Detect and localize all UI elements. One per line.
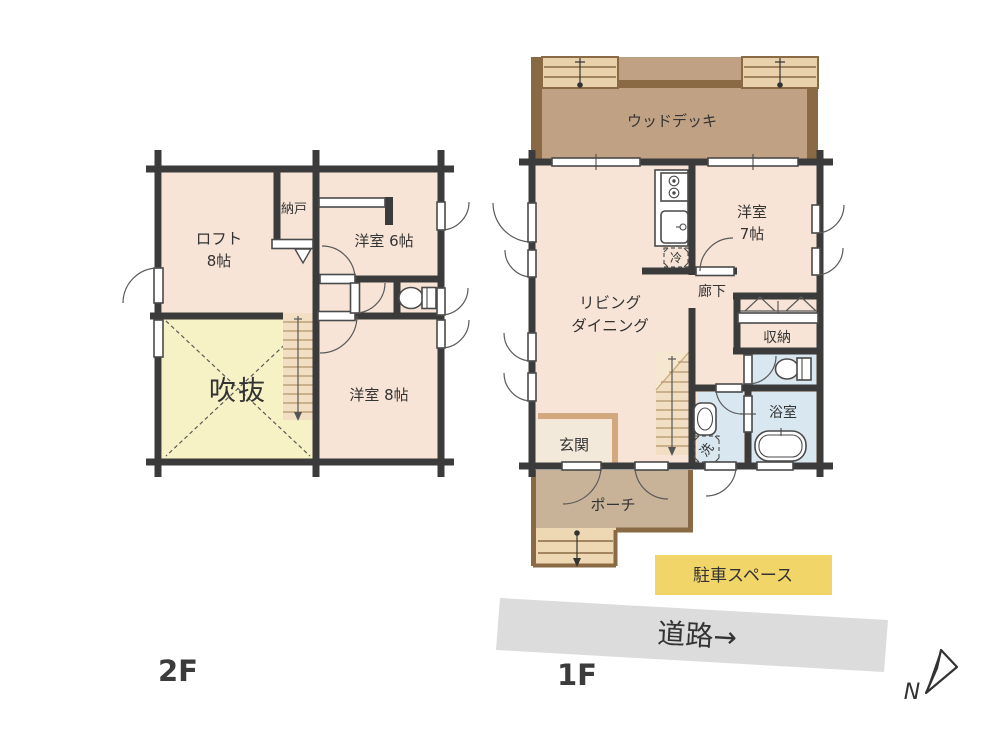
deck-steps-left [542, 57, 618, 88]
deck-label: ウッドデッキ [627, 112, 717, 130]
dining-label: ダイニング [571, 317, 649, 335]
living-window-3 [504, 333, 536, 361]
living-window-4 [504, 373, 536, 401]
toilet-icon [399, 288, 436, 309]
atrium-label: 吹抜 [209, 376, 267, 407]
floor-1f-label: 1F [557, 658, 597, 692]
wood-deck [531, 57, 818, 162]
living-window-2 [505, 250, 536, 277]
road-label: 道路→ [657, 617, 738, 655]
washbasin-icon [694, 403, 716, 435]
bath-window [757, 462, 793, 470]
floor-plan-canvas: ロフト 8帖 納戸 洋室 6帖 洋室 8帖 吹抜 2F [0, 0, 1000, 750]
room7-label: 洋室 [737, 203, 767, 221]
hallway-label: 廊下 [698, 283, 726, 300]
room7-window-2 [812, 248, 843, 275]
parking-label: 駐車スペース [693, 566, 793, 586]
fridge-label: 冷 [670, 251, 682, 265]
deck-steps-right [742, 57, 818, 88]
nando-label: 納戸 [281, 202, 307, 217]
atrium-window [154, 320, 163, 357]
room6-window [437, 202, 469, 230]
floor-2f-label: 2F [158, 654, 198, 688]
hall-window [437, 288, 468, 315]
parking-space: 駐車スペース [655, 555, 832, 595]
room7-size-label: 7帖 [740, 225, 765, 243]
loft-balcony-door [123, 268, 163, 303]
porch [533, 470, 693, 567]
room8-window [437, 320, 469, 348]
floor-plan-svg: ロフト 8帖 納戸 洋室 6帖 洋室 8帖 吹抜 2F [0, 0, 1000, 750]
sink-icon [661, 211, 688, 243]
bathtub-icon [755, 428, 806, 461]
room6-label: 洋室 6帖 [354, 232, 413, 250]
porch-label: ポーチ [590, 496, 635, 514]
room8-label: 洋室 8帖 [349, 386, 408, 404]
stove-icon [661, 173, 688, 201]
stairs-1f [656, 352, 689, 456]
room7-window-1 [812, 205, 844, 233]
living-window-1 [493, 203, 536, 242]
closet-sliding-door [738, 313, 818, 323]
bathroom-label: 浴室 [769, 404, 797, 421]
closet-label: 収納 [763, 330, 791, 346]
north-label: N [904, 680, 920, 705]
closet-wall-stub [385, 197, 393, 225]
loft-label: ロフト [196, 230, 243, 248]
stairs-2f [283, 313, 313, 421]
floor-1f: 冷 洗 [493, 57, 844, 692]
washroom-exterior-door [705, 462, 736, 496]
toilet-icon [776, 358, 812, 380]
entrance-label: 玄関 [559, 436, 589, 454]
floor-2f: ロフト 8帖 納戸 洋室 6帖 洋室 8帖 吹抜 2F [123, 150, 469, 688]
loft-size-label: 8帖 [207, 252, 232, 270]
closet-sliding-door [319, 198, 385, 207]
living-label: リビング [579, 294, 641, 312]
road: 道路→ [496, 598, 888, 672]
north-arrow-icon: N [904, 650, 957, 705]
